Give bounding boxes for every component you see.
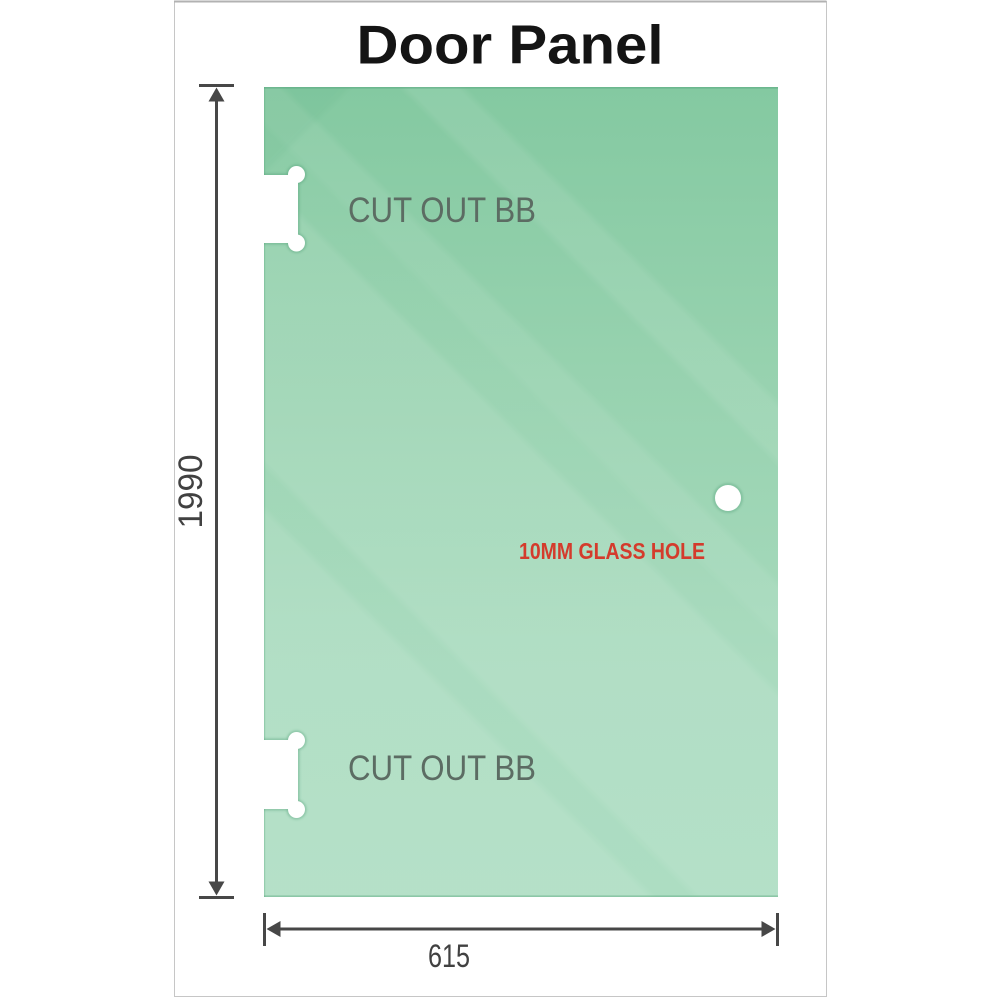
svg-text:10MM GLASS HOLE: 10MM GLASS HOLE <box>519 538 705 564</box>
svg-text:CUT OUT BB: CUT OUT BB <box>348 749 536 788</box>
svg-text:Door Panel: Door Panel <box>357 14 664 76</box>
svg-text:615: 615 <box>428 938 470 974</box>
svg-text:1990: 1990 <box>172 455 210 529</box>
svg-text:CUT OUT BB: CUT OUT BB <box>348 191 536 230</box>
